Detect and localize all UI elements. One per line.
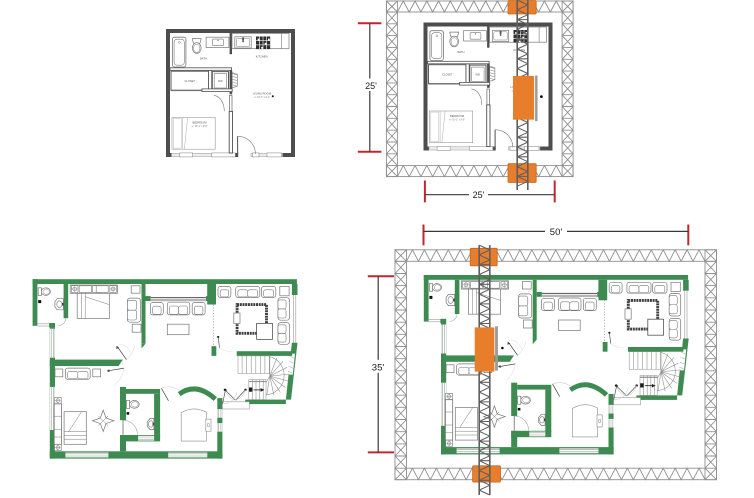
- svg-text:35': 35': [372, 363, 385, 374]
- svg-text:25': 25': [473, 190, 485, 200]
- svg-text:50': 50': [550, 227, 563, 238]
- svg-text:25': 25': [365, 81, 377, 91]
